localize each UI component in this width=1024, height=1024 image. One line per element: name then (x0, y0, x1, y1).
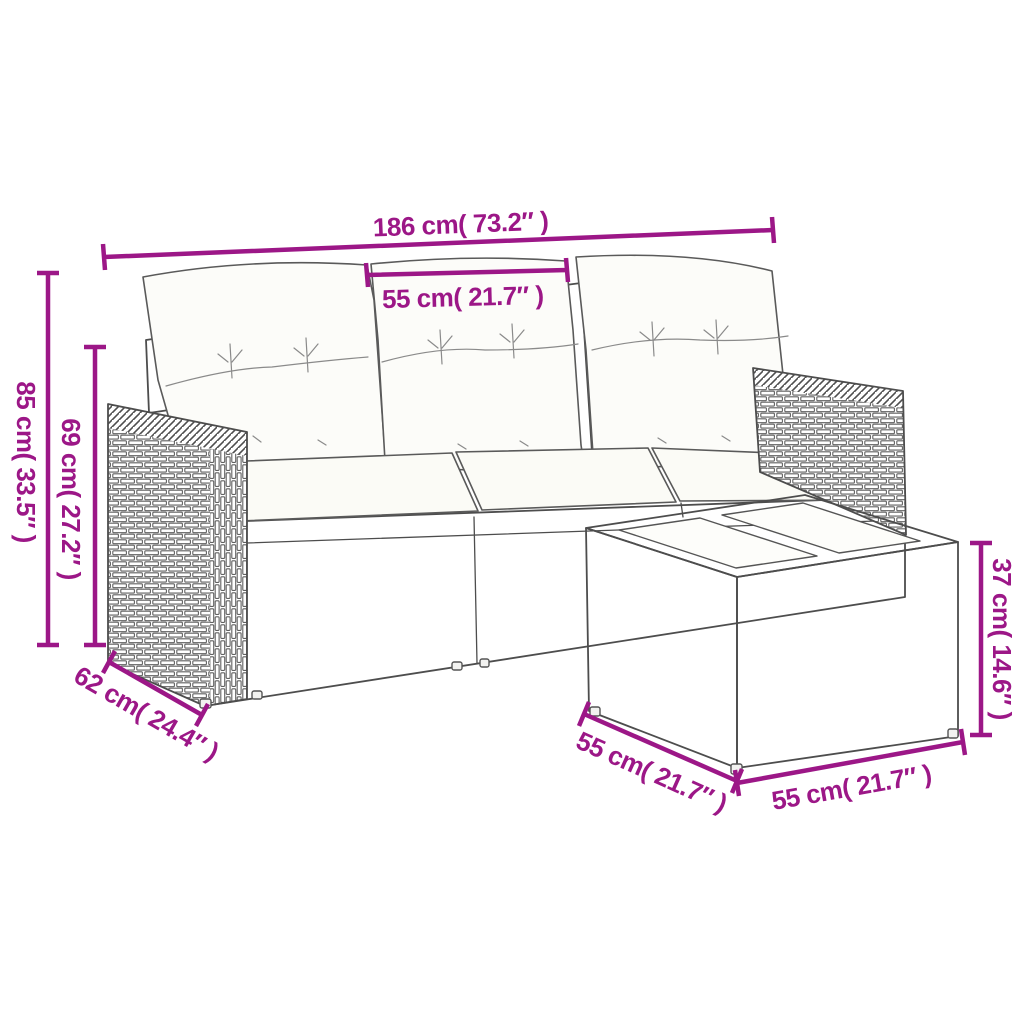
dimension-table-width: 55 cm( 21.7″ ) (735, 729, 965, 816)
sofa-module-seam-1 (474, 517, 477, 663)
left-armrest-front-strip (210, 425, 247, 705)
dimension-backrest-height: 69 cm( 27.2″ ) (56, 347, 106, 645)
left-armrest (108, 404, 247, 706)
table-right-face (737, 542, 958, 768)
diagram-canvas: 186 cm( 73.2″ ) 55 cm( 21.7″ ) 85 cm( 33… (0, 0, 1024, 1024)
seat-cushion-left (240, 453, 478, 521)
dimension-sofa-height-label: 85 cm( 33.5″ ) (11, 381, 41, 543)
dimension-table-height: 37 cm( 14.6″ ) (970, 543, 1017, 735)
dimension-backrest-height-label: 69 cm( 27.2″ ) (56, 418, 86, 580)
left-armrest-side (108, 404, 210, 706)
seat-cushion-middle (456, 448, 676, 510)
dimension-diagram: 186 cm( 73.2″ ) 55 cm( 21.7″ ) 85 cm( 33… (0, 0, 1024, 1024)
dimension-sofa-height: 85 cm( 33.5″ ) (11, 273, 59, 645)
dimension-table-depth-label: 55 cm( 21.7″ ) (572, 725, 732, 818)
dimension-seat-width-label: 55 cm( 21.7″ ) (382, 280, 544, 314)
table-front-face (586, 528, 737, 768)
side-table (586, 495, 958, 774)
dimension-sofa-width-label: 186 cm( 73.2″ ) (372, 205, 549, 242)
dimension-table-width-label: 55 cm( 21.7″ ) (769, 758, 933, 816)
dimension-table-height-label: 37 cm( 14.6″ ) (987, 558, 1017, 720)
sofa (108, 255, 906, 708)
